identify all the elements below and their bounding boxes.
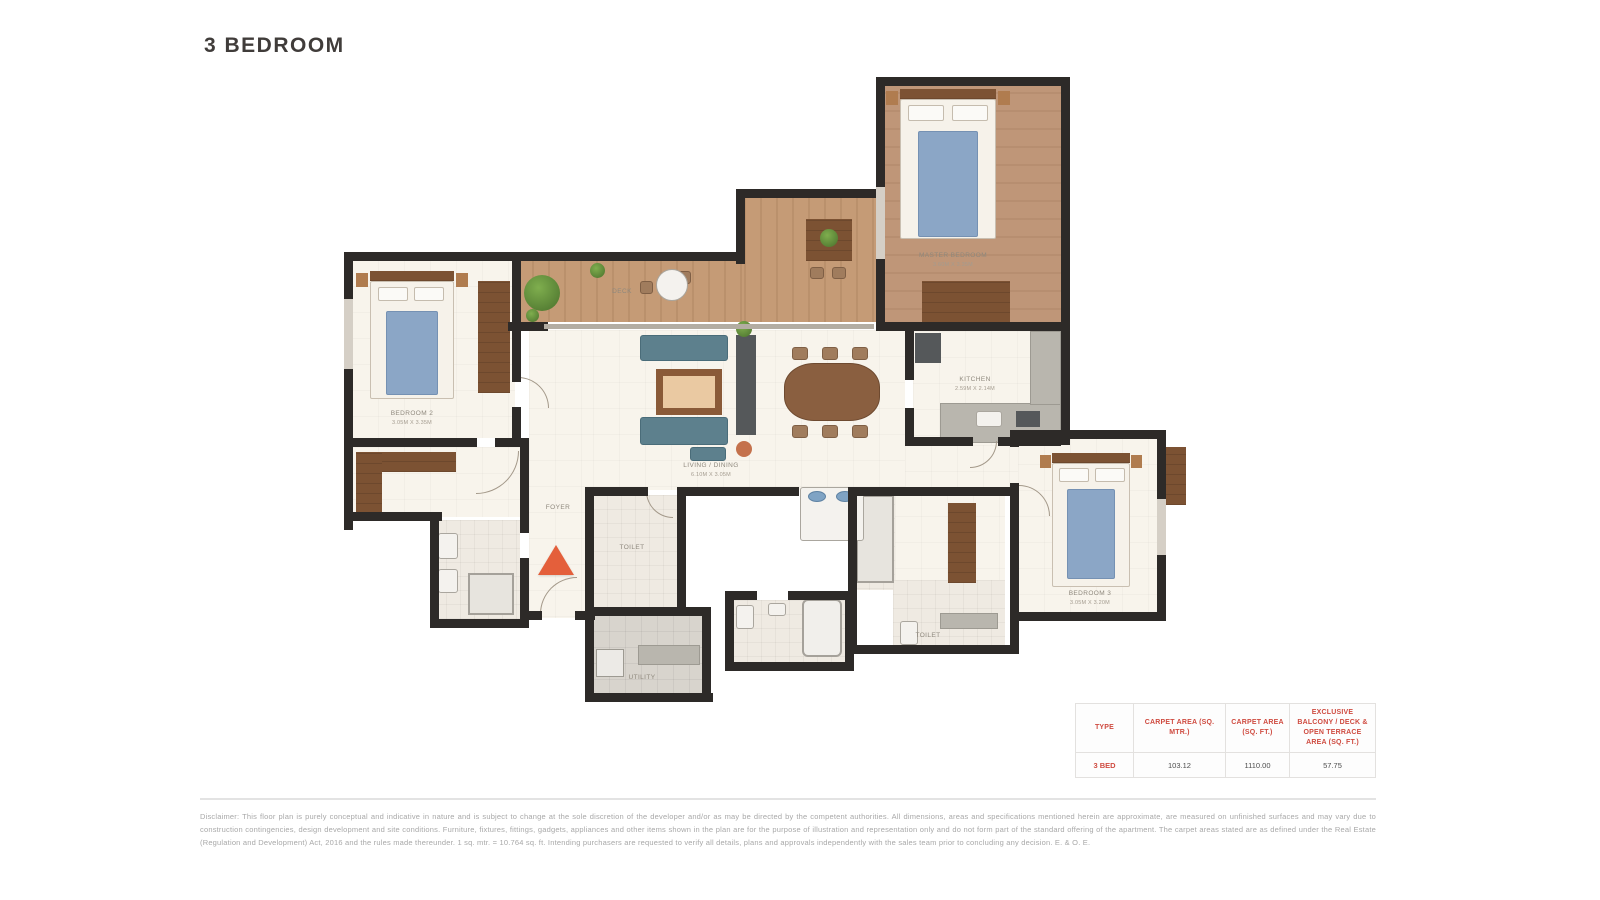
col-header-carpet-sqm: CARPET AREA (SQ. MTR.)	[1134, 704, 1226, 753]
passage-floor	[905, 445, 1018, 493]
room-dims: 3.60M X 3.35M	[888, 261, 1018, 269]
vanity-counter	[940, 613, 998, 629]
bathtub	[802, 599, 842, 657]
room-name: DECK	[612, 288, 632, 295]
room-label-living-dining: LIVING / DINING 6.10M X 3.05M	[636, 461, 786, 479]
pillow	[414, 287, 444, 301]
wall	[593, 487, 648, 496]
pillow	[908, 105, 944, 121]
page-title: 3 BEDROOM	[204, 34, 345, 58]
divider	[200, 798, 1376, 800]
room-label-toilet-2: TOILET	[888, 631, 968, 641]
window	[1157, 499, 1166, 555]
plant	[820, 229, 838, 247]
dining-chair	[822, 347, 838, 360]
wall	[585, 487, 594, 702]
bed-headboard	[370, 271, 454, 281]
wall	[677, 487, 799, 496]
toilet	[438, 569, 458, 593]
room-name: TOILET	[915, 632, 940, 639]
wall	[905, 437, 973, 446]
sofa	[640, 335, 728, 361]
room-name: TOILET	[619, 544, 644, 551]
wall	[1010, 430, 1166, 439]
cell-carpet-sqm: 103.12	[1134, 753, 1226, 778]
wardrobe	[948, 503, 976, 583]
sliding-door	[544, 324, 874, 329]
utility-counter	[638, 645, 700, 665]
wall	[585, 607, 711, 616]
wall	[585, 693, 713, 702]
dining-chair	[852, 347, 868, 360]
wall	[1061, 77, 1070, 330]
room-label-master-bedroom: MASTER BEDROOM 3.60M X 3.35M	[888, 251, 1018, 269]
patio-chair	[810, 267, 824, 279]
wall	[677, 495, 686, 607]
patio-table	[656, 269, 688, 301]
dining-table	[784, 363, 880, 421]
room-name: MASTER BEDROOM	[919, 252, 987, 259]
shower	[468, 573, 514, 615]
nightstand	[998, 91, 1010, 105]
nightstand	[356, 273, 368, 287]
cell-type: 3 BED	[1076, 753, 1134, 778]
kitchen-counter	[1030, 331, 1061, 405]
wall	[1010, 483, 1019, 653]
floor-plan: MASTER BEDROOM 3.60M X 3.35M BEDROOM 2 3…	[340, 75, 1180, 720]
room-name: LIVING / DINING	[683, 462, 738, 469]
room-label-kitchen: KITCHEN 2.59M X 2.14M	[932, 375, 1018, 393]
room-name: FOYER	[546, 504, 570, 511]
room-label-deck: DECK	[592, 287, 652, 297]
nightstand	[1131, 455, 1142, 468]
bed-blanket	[1067, 489, 1115, 579]
wall	[508, 252, 745, 261]
room-dims: 2.59M X 2.14M	[932, 385, 1018, 393]
room-dims: 6.10M X 3.05M	[636, 471, 786, 479]
bed-blanket	[918, 131, 978, 237]
bed-headboard	[1052, 453, 1130, 463]
pillow	[1059, 468, 1089, 482]
window	[876, 187, 885, 259]
pillow	[1095, 468, 1125, 482]
area-table: TYPE CARPET AREA (SQ. MTR.) CARPET AREA …	[1075, 703, 1376, 778]
dresser	[356, 452, 382, 514]
room-name: KITCHEN	[959, 376, 990, 383]
wall	[876, 77, 1070, 86]
room-dims: 3.05M X 3.20M	[1042, 599, 1138, 607]
room-label-toilet-1: TOILET	[594, 543, 670, 553]
room-dims: 3.05M X 3.35M	[354, 419, 470, 427]
washbasin	[438, 533, 458, 559]
pillow	[378, 287, 408, 301]
dining-chair	[822, 425, 838, 438]
dining-chair	[852, 425, 868, 438]
tv-unit	[736, 335, 756, 435]
sofa	[640, 417, 728, 445]
wall	[702, 607, 711, 702]
wardrobe	[922, 281, 1010, 323]
area-table-header-row: TYPE CARPET AREA (SQ. MTR.) CARPET AREA …	[1076, 704, 1376, 753]
area-table-data-row: 3 BED 103.12 1110.00 57.75	[1076, 753, 1376, 778]
toilet	[736, 605, 754, 629]
wall	[344, 512, 442, 521]
wall	[1061, 322, 1070, 445]
wall	[725, 591, 734, 671]
cell-balcony: 57.75	[1290, 753, 1376, 778]
nightstand	[456, 273, 468, 287]
wall	[344, 252, 517, 261]
console	[690, 447, 726, 461]
col-header-balcony: EXCLUSIVE BALCONY / DECK & OPEN TERRACE …	[1290, 704, 1376, 753]
wall	[852, 487, 1010, 496]
wall	[512, 407, 521, 447]
room-name: BEDROOM 2	[391, 410, 434, 417]
nightstand	[1040, 455, 1051, 468]
coffee-table	[656, 369, 722, 415]
room-label-bedroom-3: BEDROOM 3 3.05M X 3.20M	[1042, 589, 1138, 607]
col-header-type: TYPE	[1076, 704, 1134, 753]
disclaimer-text: Disclaimer: This floor plan is purely co…	[200, 810, 1376, 849]
washbasin	[768, 603, 786, 616]
patio-chair	[832, 267, 846, 279]
kitchen-sink	[976, 411, 1002, 427]
bed-headboard	[900, 89, 996, 99]
pillow	[952, 105, 988, 121]
wall	[848, 487, 857, 653]
room-label-bedroom-2: BEDROOM 2 3.05M X 3.35M	[354, 409, 470, 427]
wall	[430, 512, 439, 628]
room-label-foyer: FOYER	[530, 503, 586, 513]
wall	[512, 260, 521, 382]
entry-arrow-icon	[538, 545, 574, 575]
wall	[905, 322, 914, 380]
wall	[1010, 439, 1019, 447]
dining-chair	[792, 425, 808, 438]
cell-carpet-sqft: 1110.00	[1226, 753, 1290, 778]
nightstand	[886, 91, 898, 105]
wall	[430, 619, 529, 628]
plant	[524, 275, 560, 311]
wall	[848, 645, 1019, 654]
planter	[736, 441, 752, 457]
wall	[520, 438, 529, 533]
wall	[520, 611, 542, 620]
wall	[1010, 612, 1166, 621]
plant	[526, 309, 539, 322]
plant	[590, 263, 605, 278]
page: { "page": { "title": "3 BEDROOM" }, "pla…	[0, 0, 1600, 900]
room-name: BEDROOM 3	[1069, 590, 1112, 597]
washbasin	[808, 491, 826, 502]
bed-blanket	[386, 311, 438, 395]
refrigerator	[915, 333, 941, 363]
dining-chair	[792, 347, 808, 360]
wardrobe	[478, 281, 510, 393]
wall	[344, 438, 477, 447]
room-name: UTILITY	[629, 674, 656, 681]
room-label-utility: UTILITY	[596, 673, 688, 683]
wall	[736, 189, 885, 198]
hob	[1016, 411, 1040, 427]
wall	[725, 662, 854, 671]
col-header-carpet-sqft: CARPET AREA (SQ. FT.)	[1226, 704, 1290, 753]
window	[344, 299, 353, 369]
